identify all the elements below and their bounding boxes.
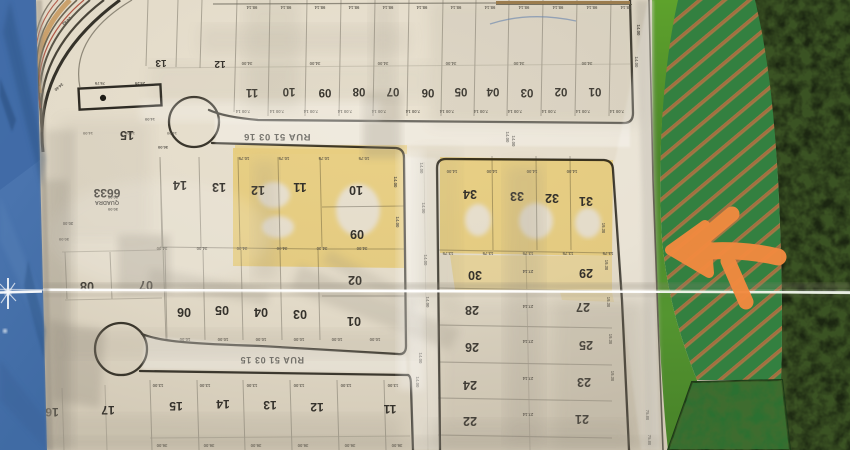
svg-text:75.75: 75.75 [94, 81, 105, 86]
svg-text:11: 11 [293, 180, 306, 194]
svg-text:13.00: 13.00 [340, 383, 351, 388]
svg-text:13.00: 13.00 [246, 383, 257, 388]
svg-text:34.00: 34.00 [316, 246, 327, 251]
svg-text:11: 11 [383, 402, 396, 416]
svg-text:17: 17 [101, 403, 115, 417]
svg-text:19.30: 19.30 [601, 223, 606, 234]
svg-text:98.14: 98.14 [314, 5, 325, 10]
svg-text:10: 10 [349, 183, 363, 197]
svg-text:98.14: 98.14 [348, 5, 359, 10]
svg-text:10.75: 10.75 [318, 156, 329, 161]
svg-text:34: 34 [463, 187, 477, 201]
svg-text:14: 14 [216, 397, 230, 411]
svg-text:29: 29 [579, 266, 593, 280]
svg-text:30: 30 [468, 268, 482, 282]
svg-text:05: 05 [215, 303, 229, 317]
svg-text:36.00: 36.00 [157, 145, 168, 150]
svg-text:13.00: 13.00 [152, 383, 163, 388]
svg-text:14.00: 14.00 [393, 177, 398, 189]
svg-text:13.75: 13.75 [482, 251, 493, 256]
svg-text:19.30: 19.30 [604, 260, 609, 271]
svg-text:98.14: 98.14 [416, 5, 427, 10]
svg-text:06: 06 [177, 305, 191, 319]
svg-text:09: 09 [350, 227, 364, 241]
svg-text:15: 15 [169, 399, 183, 413]
svg-text:31: 31 [579, 194, 593, 208]
svg-text:04: 04 [254, 305, 268, 319]
svg-text:10.75: 10.75 [238, 156, 249, 161]
svg-text:13: 13 [263, 398, 277, 412]
svg-text:13.00: 13.00 [387, 383, 398, 388]
svg-text:13.00: 13.00 [293, 383, 304, 388]
svg-text:14.00: 14.00 [566, 169, 577, 174]
svg-text:13.00: 13.00 [199, 383, 210, 388]
svg-text:13.75: 13.75 [562, 251, 573, 256]
svg-text:01: 01 [347, 314, 361, 328]
svg-text:12: 12 [310, 400, 324, 414]
svg-text:03: 03 [293, 307, 307, 321]
svg-text:10.75: 10.75 [278, 156, 289, 161]
svg-text:32: 32 [545, 191, 559, 205]
svg-text:34.00: 34.00 [356, 246, 367, 251]
svg-text:14.00: 14.00 [486, 169, 497, 174]
svg-text:14.00: 14.00 [166, 131, 177, 136]
svg-text:13.75: 13.75 [602, 251, 613, 256]
svg-text:25.25: 25.25 [134, 81, 145, 86]
svg-text:7.00 14: 7.00 14 [405, 109, 420, 114]
